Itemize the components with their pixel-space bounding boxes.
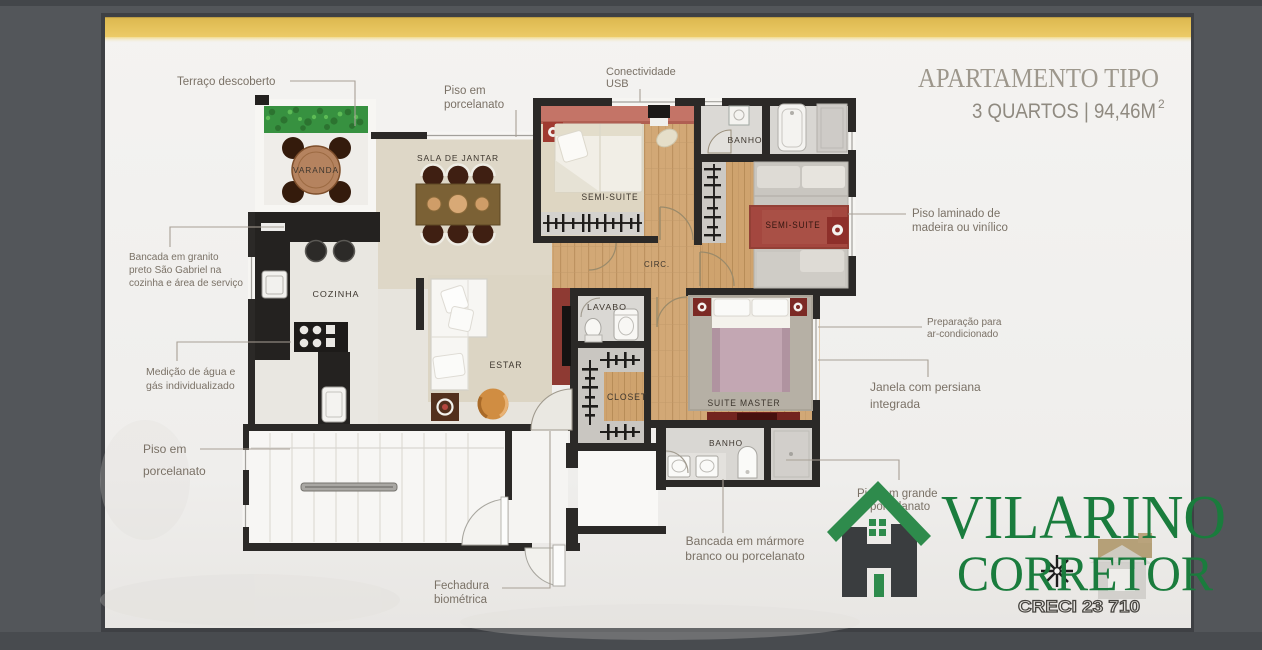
svg-text:CORRETOR: CORRETOR bbox=[957, 545, 1214, 601]
svg-text:branco ou porcelanato: branco ou porcelanato bbox=[685, 549, 805, 563]
svg-text:porcelanato: porcelanato bbox=[143, 464, 206, 478]
svg-text:BANHO: BANHO bbox=[709, 438, 743, 448]
svg-text:madeira ou vinílico: madeira ou vinílico bbox=[912, 222, 1008, 234]
svg-text:SEMI-SUITE: SEMI-SUITE bbox=[766, 220, 821, 230]
svg-text:COZINHA: COZINHA bbox=[313, 289, 360, 299]
svg-text:APARTAMENTO TIPO: APARTAMENTO TIPO bbox=[918, 63, 1159, 93]
svg-text:BANHO: BANHO bbox=[728, 135, 763, 145]
svg-text:2: 2 bbox=[1158, 97, 1165, 111]
svg-text:Bancada em granito: Bancada em granito bbox=[129, 252, 219, 263]
svg-text:Preparação para: Preparação para bbox=[927, 317, 1002, 328]
svg-text:LAVABO: LAVABO bbox=[587, 303, 627, 312]
svg-text:porcelanato: porcelanato bbox=[444, 99, 504, 111]
svg-text:Piso laminado de: Piso laminado de bbox=[912, 208, 1000, 220]
svg-text:VILARINO: VILARINO bbox=[941, 484, 1226, 552]
svg-text:CIRC.: CIRC. bbox=[644, 260, 670, 269]
svg-text:CRECI 23 710: CRECI 23 710 bbox=[1018, 598, 1140, 616]
svg-text:Medição de água e: Medição de água e bbox=[146, 366, 235, 378]
svg-text:Bancada em mármore: Bancada em mármore bbox=[686, 534, 805, 548]
svg-text:gás individualizado: gás individualizado bbox=[146, 380, 235, 392]
svg-text:Fechadura: Fechadura bbox=[434, 580, 490, 592]
svg-text:SALA DE JANTAR: SALA DE JANTAR bbox=[417, 153, 499, 163]
svg-text:SUITE MASTER: SUITE MASTER bbox=[708, 398, 781, 408]
svg-text:ar-condicionado: ar-condicionado bbox=[927, 329, 999, 340]
svg-text:Conectividade: Conectividade bbox=[606, 66, 676, 78]
svg-text:Piso em: Piso em bbox=[444, 85, 486, 97]
svg-text:CLOSET: CLOSET bbox=[607, 392, 647, 402]
svg-text:preto São Gabriel na: preto São Gabriel na bbox=[129, 265, 222, 276]
svg-text:biométrica: biométrica bbox=[434, 594, 488, 606]
svg-text:3 QUARTOS | 94,46M: 3 QUARTOS | 94,46M bbox=[972, 100, 1156, 123]
svg-text:integrada: integrada bbox=[870, 397, 920, 411]
svg-text:VARANDA: VARANDA bbox=[293, 166, 339, 175]
svg-text:cozinha e área de serviço: cozinha e área de serviço bbox=[129, 278, 243, 289]
svg-text:SEMI-SUITE: SEMI-SUITE bbox=[582, 192, 639, 202]
svg-text:USB: USB bbox=[606, 78, 629, 90]
svg-text:Janela com persiana: Janela com persiana bbox=[870, 380, 981, 394]
svg-text:Terraço descoberto: Terraço descoberto bbox=[177, 76, 275, 88]
svg-text:ESTAR: ESTAR bbox=[490, 360, 523, 370]
svg-text:Piso em: Piso em bbox=[143, 442, 186, 456]
